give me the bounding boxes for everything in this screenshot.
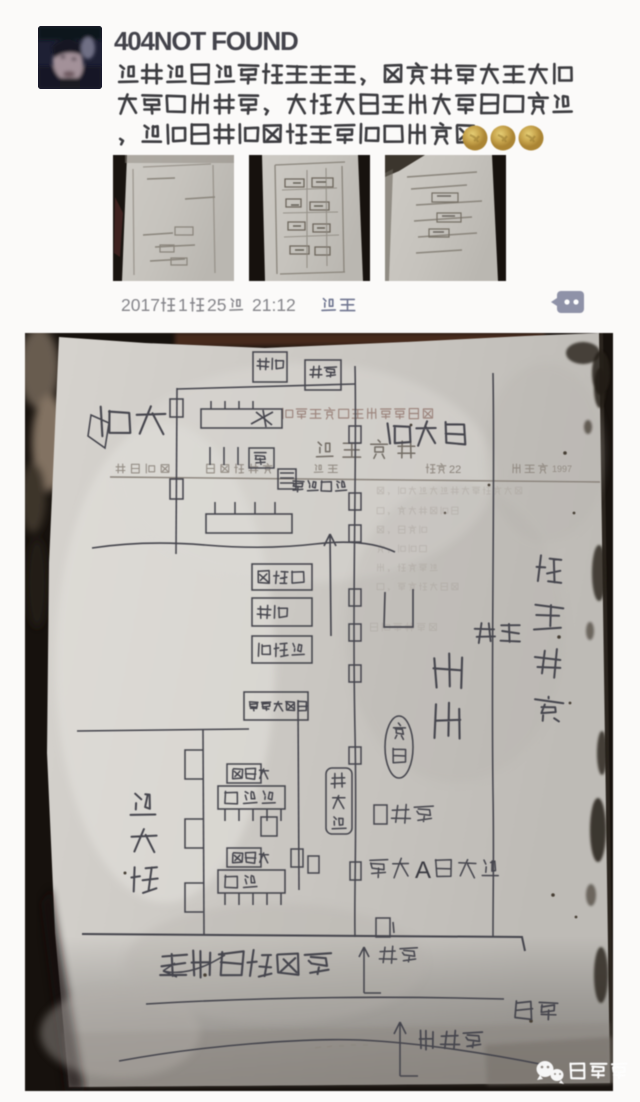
svg-text:22: 22 <box>449 464 461 476</box>
svg-text:2017: 2017 <box>121 295 160 315</box>
svg-text:1: 1 <box>178 295 188 315</box>
svg-text:21:12: 21:12 <box>252 295 296 315</box>
svg-text:A: A <box>415 857 431 884</box>
svg-text:1997: 1997 <box>552 464 572 474</box>
svg-text:25: 25 <box>207 295 226 315</box>
